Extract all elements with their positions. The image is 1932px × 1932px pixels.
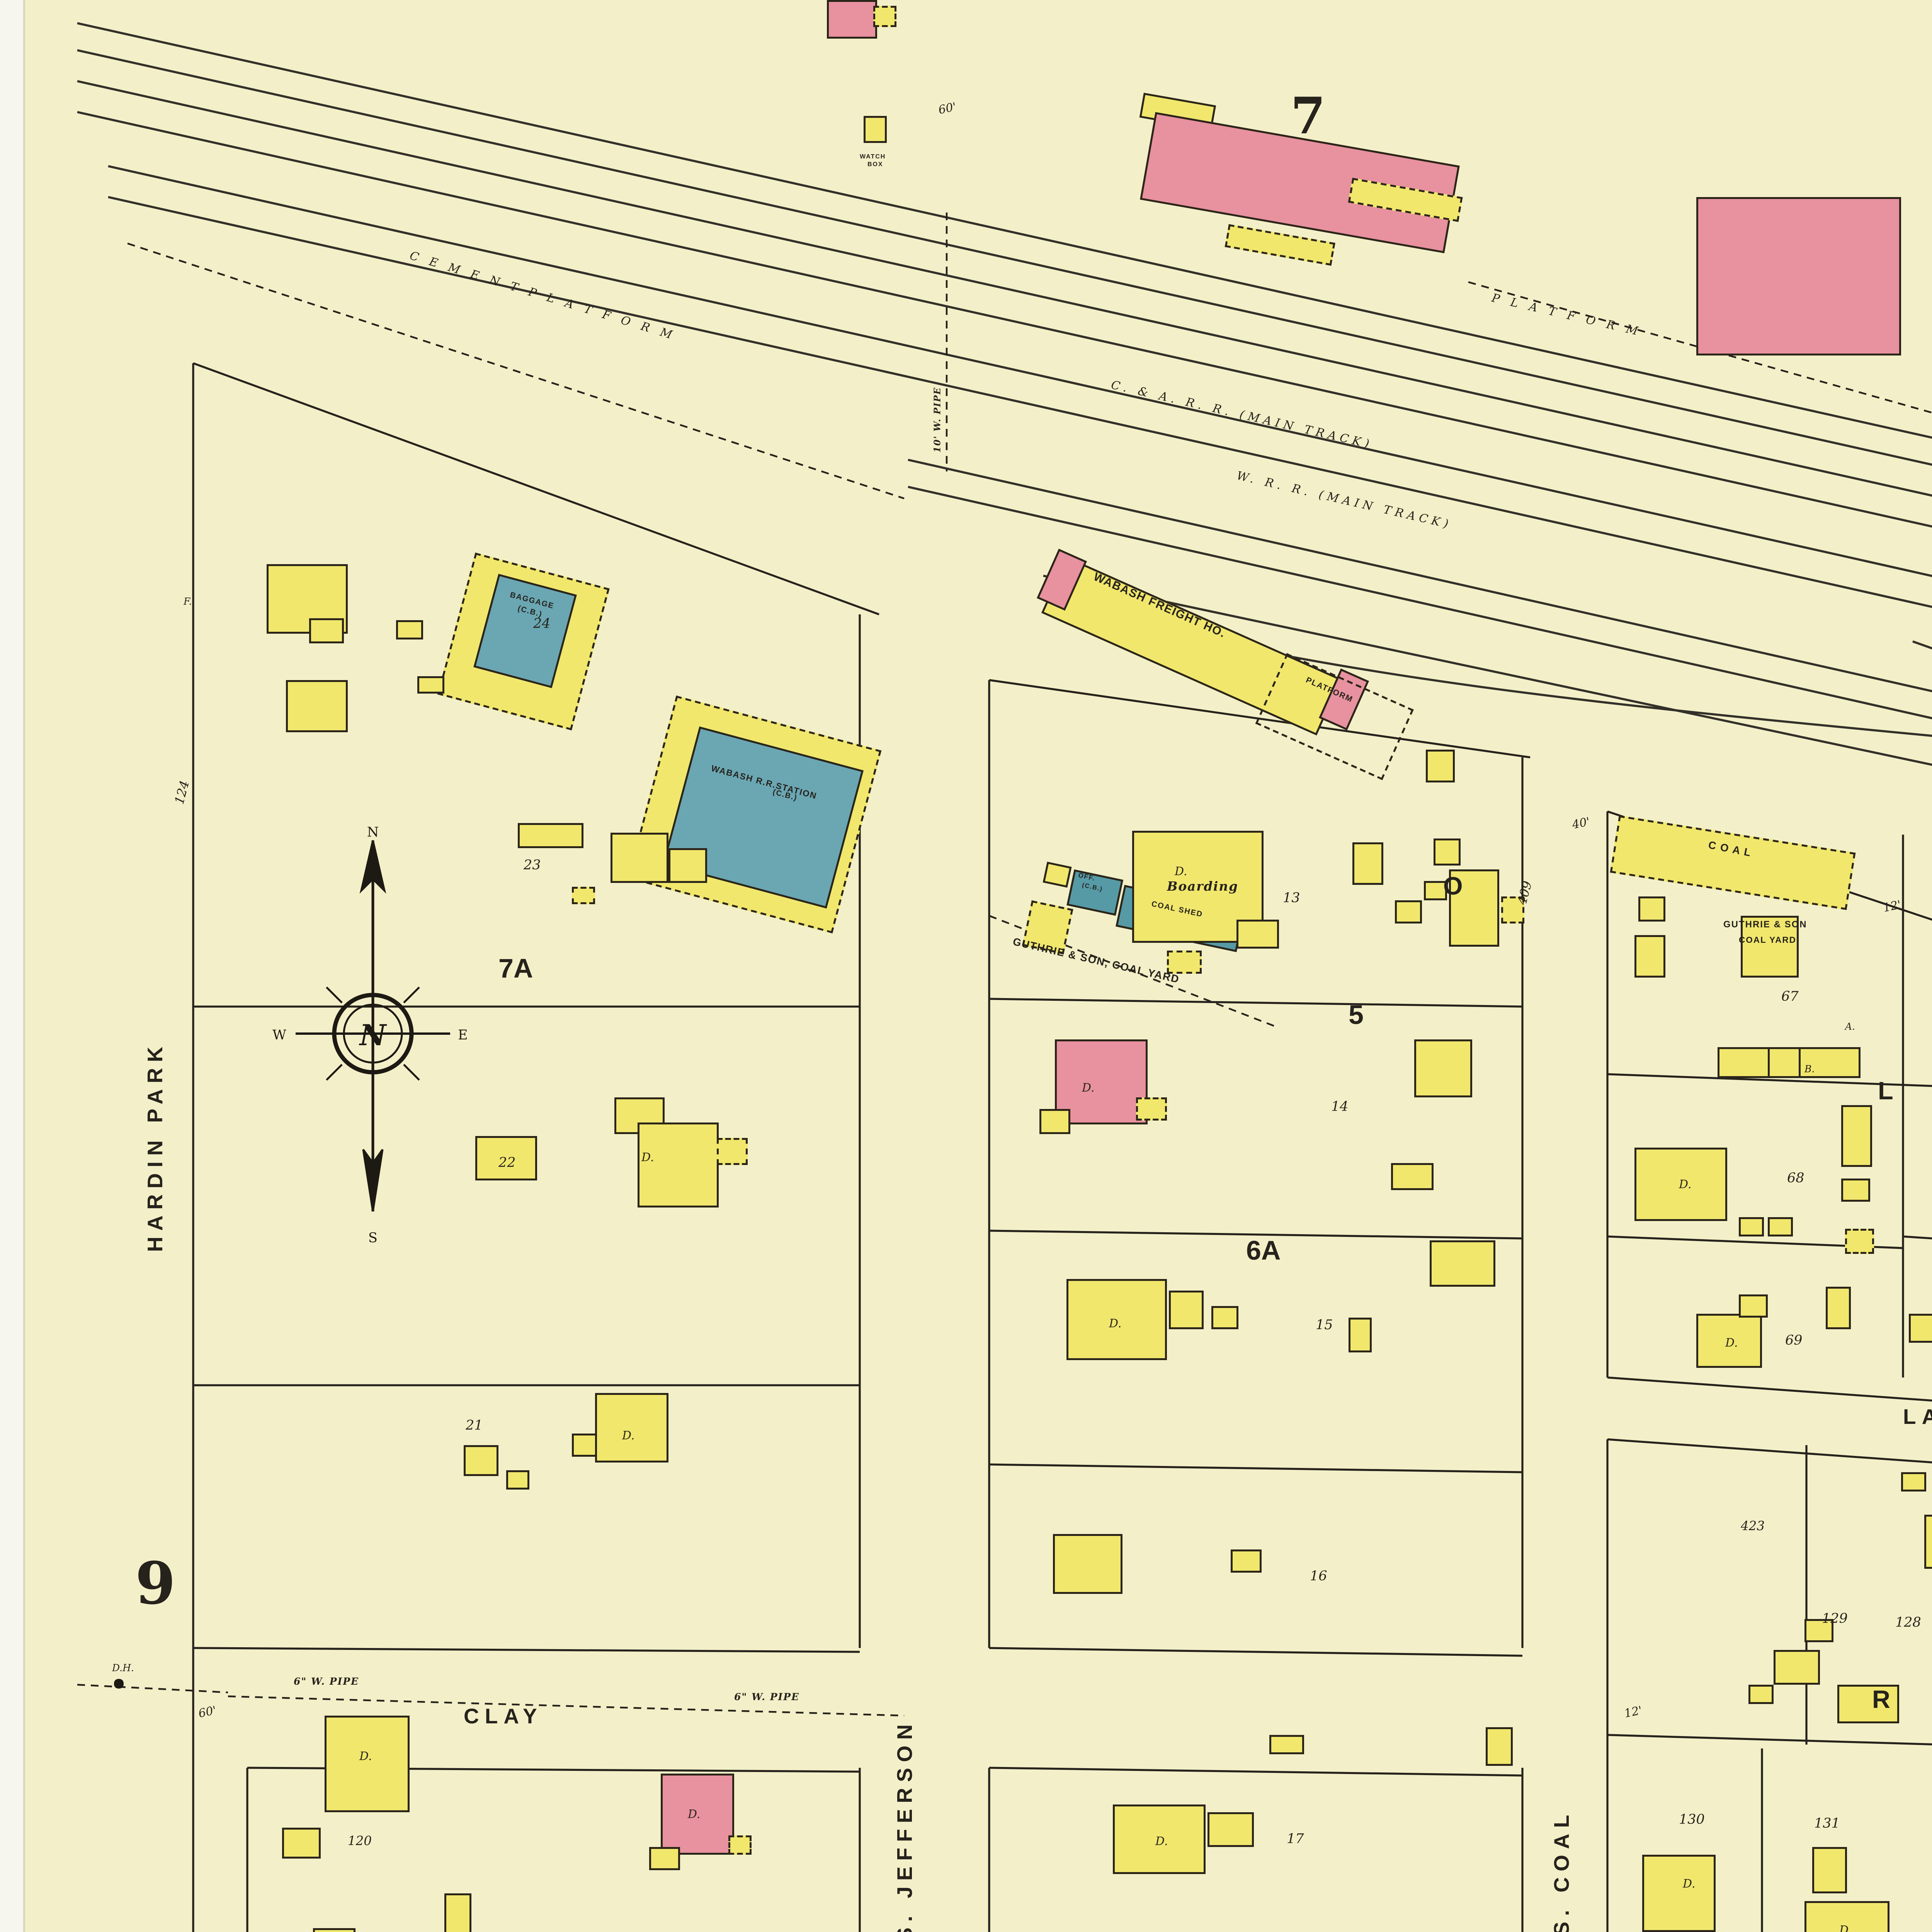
building-footprint (313, 1928, 355, 1932)
building-footprint (1812, 1847, 1847, 1893)
street-boundary-line (1607, 1735, 1932, 1750)
dashed-utility-line (228, 1696, 904, 1716)
street-name: LAFAYETTE (1903, 1408, 1932, 1430)
lot-number: 128 (1895, 1617, 1921, 1631)
place-label: 6" W. PIPE (294, 1679, 359, 1689)
building-footprint (325, 1716, 410, 1812)
railroad-track-line (1913, 641, 1932, 862)
street-boundary-line (989, 999, 1522, 1007)
adjacent-sheet-number: 7 (1291, 93, 1325, 143)
building-footprint (1395, 900, 1422, 923)
building-footprint (1167, 951, 1202, 974)
building-footprint (396, 620, 423, 639)
dwelling-mark: D. (1679, 1179, 1692, 1192)
building-footprint (1136, 1097, 1167, 1121)
building-footprint (506, 1470, 529, 1490)
dwelling-mark: D. (1839, 1924, 1852, 1932)
building-footprint (1236, 920, 1279, 949)
building-footprint (1352, 842, 1383, 885)
building-footprint (1039, 1109, 1070, 1134)
building-footprint (282, 1828, 321, 1859)
building-footprint (1434, 838, 1461, 866)
building-footprint (1901, 1472, 1926, 1492)
building-footprint (1924, 1515, 1932, 1569)
place-label: Boarding (1167, 881, 1238, 894)
building-footprint (1638, 896, 1665, 922)
railroad-track-line (77, 23, 1932, 572)
railroad-track-line (77, 112, 1932, 661)
building-footprint (1634, 935, 1665, 978)
street-boundary-line (193, 1648, 860, 1652)
building-footprint (1768, 1047, 1801, 1078)
building-footprint (595, 1393, 668, 1463)
building-footprint (1841, 1105, 1872, 1167)
svg-text:W: W (272, 1027, 286, 1043)
dashed-utility-line (77, 1685, 228, 1692)
sanborn-map-sheet: D.D.D.D.D.D.D.D.D.D.D.D.D.D.D.D.D.D.D.D.… (0, 0, 1932, 1932)
building-footprint (1211, 1306, 1238, 1329)
building-footprint (1696, 197, 1901, 355)
building-footprint (1774, 1650, 1820, 1685)
street-boundary-line (989, 1768, 1522, 1776)
svg-text:N: N (367, 825, 379, 840)
building-footprint (286, 680, 348, 732)
lot-number: 23 (524, 860, 541, 873)
lot-number: 22 (498, 1157, 516, 1171)
building-footprint (1845, 1229, 1874, 1254)
street-name: CLAY (464, 1708, 543, 1729)
lot-number: 16 (1310, 1571, 1327, 1584)
building-footprint (1169, 1291, 1204, 1329)
place-label: GUTHRIE & SON (1723, 923, 1807, 933)
compass-rose-icon: N N E W S (257, 825, 489, 1250)
reference-letter: A. (1845, 1024, 1855, 1034)
dwelling-mark: D. (1082, 1082, 1095, 1095)
railroad-track-line (108, 197, 1932, 742)
dwelling-mark: D. (1683, 1878, 1696, 1891)
building-footprint (717, 1138, 748, 1165)
building-footprint (649, 1847, 680, 1870)
street-name-vertical: S. JEFFERSON (896, 1719, 918, 1932)
address-number: 120 (348, 1835, 372, 1848)
lot-number: 24 (533, 618, 551, 632)
building-footprint (1826, 1287, 1851, 1329)
building-footprint (827, 0, 877, 39)
street-boundary-line (1903, 1236, 1932, 1252)
place-label: WATCH (860, 155, 886, 161)
building-footprint (728, 1835, 752, 1855)
lot-number: 67 (1781, 991, 1799, 1005)
svg-text:S: S (368, 1230, 378, 1246)
street-name-vertical: S. COAL (1553, 1809, 1575, 1932)
building-footprint (1748, 1685, 1774, 1704)
street-boundary-line (989, 1648, 1522, 1656)
lot-number: 68 (1787, 1173, 1804, 1186)
street-boundary-line (989, 1464, 1522, 1472)
lot-number: 15 (1316, 1320, 1333, 1333)
lot-number: 13 (1283, 893, 1300, 906)
building-footprint (864, 116, 887, 143)
building-footprint (1486, 1727, 1513, 1766)
building-footprint (1391, 1163, 1434, 1190)
building-footprint (417, 676, 444, 694)
address-number: 423 (1741, 1520, 1765, 1533)
building-footprint (668, 848, 707, 883)
building-footprint (444, 1893, 471, 1932)
place-label: COAL YARD (1739, 937, 1796, 946)
building-footprint (1841, 1179, 1870, 1202)
lot-number: 14 (1331, 1101, 1349, 1115)
building-footprint (638, 1122, 719, 1207)
dwelling-mark: D. (1155, 1835, 1168, 1849)
svg-text:N: N (359, 1018, 387, 1052)
adjacent-sheet-number: 9 (135, 1557, 175, 1615)
railroad-track-line (77, 81, 1932, 630)
reference-letter: F. (184, 599, 192, 609)
lot-number: 131 (1814, 1818, 1840, 1832)
dwelling-mark: D. (1109, 1318, 1122, 1331)
lot-number: 17 (1287, 1833, 1304, 1847)
place-label: 10' W. PIPE (937, 387, 946, 452)
building-footprint (1207, 1812, 1254, 1847)
lot-number: 129 (1822, 1613, 1848, 1627)
building-footprint (1053, 1534, 1122, 1594)
place-label: 6" W. PIPE (734, 1694, 799, 1704)
building-footprint (464, 1445, 498, 1476)
block-number: 5 (1349, 1001, 1364, 1028)
dwelling-mark: D. (688, 1808, 701, 1822)
dwelling-mark: D. (1725, 1337, 1738, 1350)
building-footprint (309, 618, 344, 643)
building-footprint (572, 887, 595, 904)
svg-text:E: E (458, 1027, 468, 1043)
block-letter: R (1872, 1687, 1890, 1712)
building-footprint (1426, 750, 1455, 782)
building-footprint (873, 6, 896, 27)
building-footprint (1642, 1855, 1716, 1932)
building-footprint (1739, 1294, 1768, 1318)
building-footprint (1430, 1240, 1495, 1287)
block-number: 6A (1246, 1236, 1281, 1264)
lot-number: 21 (466, 1420, 483, 1434)
hydrant-dot (114, 1679, 123, 1688)
double-hydrant-label: D.H. (112, 1665, 134, 1675)
place-label: BOX (867, 162, 883, 168)
dwelling-mark: D. (359, 1750, 372, 1764)
dwelling-mark: D. (622, 1430, 635, 1443)
block-letter: L (1878, 1078, 1893, 1103)
building-footprint (1231, 1549, 1262, 1573)
building-footprint (611, 833, 668, 883)
building-footprint (1909, 1314, 1932, 1343)
block-number: 7A (498, 954, 533, 981)
railroad-track-line (77, 50, 1932, 599)
dwelling-mark: D. (641, 1151, 654, 1165)
scan-edge-left (0, 0, 25, 1932)
lot-number: 69 (1785, 1335, 1803, 1349)
street-boundary-line (1607, 1378, 1932, 1439)
building-footprint (1739, 1217, 1764, 1236)
building-footprint (1414, 1039, 1472, 1097)
building-footprint (1269, 1735, 1304, 1754)
dwelling-mark: D. (1175, 866, 1187, 879)
building-footprint (518, 823, 583, 848)
building-footprint (1768, 1217, 1793, 1236)
lot-number: 130 (1679, 1814, 1705, 1828)
block-letter: O (1443, 873, 1463, 898)
street-boundary-line (1607, 1439, 1932, 1501)
reference-letter: B. (1804, 1066, 1815, 1076)
building-footprint (1349, 1318, 1372, 1352)
street-name-vertical: HARDIN PARK (147, 1041, 168, 1252)
